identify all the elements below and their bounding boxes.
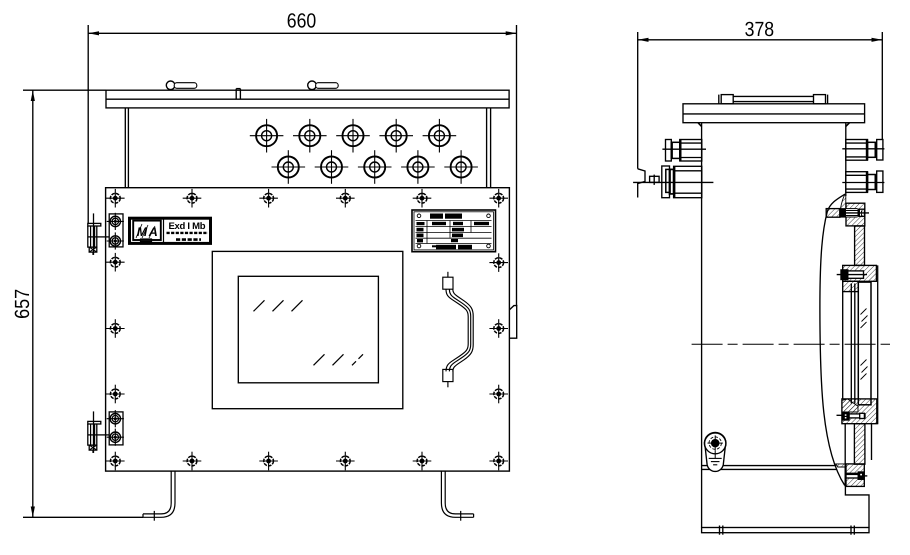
svg-text:378: 378 [745,18,775,41]
svg-text:660: 660 [287,10,317,33]
svg-text:657: 657 [11,289,34,319]
svg-text:Exd I Mb: Exd I Mb [169,221,206,232]
